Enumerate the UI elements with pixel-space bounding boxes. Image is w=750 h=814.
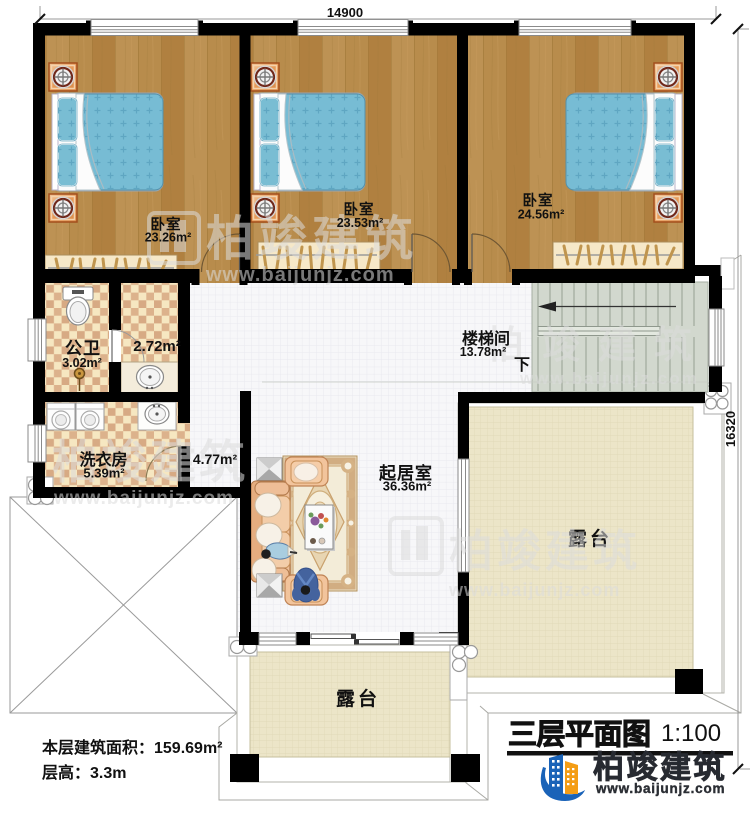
svg-text:4.77m²: 4.77m²: [193, 451, 238, 467]
svg-text:24.56m²: 24.56m²: [518, 208, 565, 222]
svg-text:16320: 16320: [723, 411, 738, 447]
svg-text:3.02m²: 3.02m²: [62, 356, 102, 370]
svg-text:www.baijunjz.com: www.baijunjz.com: [205, 264, 395, 286]
svg-text:36.36m²: 36.36m²: [383, 479, 432, 494]
svg-text:露台: 露台: [336, 687, 380, 710]
svg-text:三层平面图: 三层平面图: [508, 719, 651, 751]
svg-text:柏竣建筑: 柏竣建筑: [593, 750, 727, 785]
svg-text:13.78m²: 13.78m²: [460, 345, 507, 359]
svg-text:下: 下: [514, 357, 530, 374]
svg-text:23.53m²: 23.53m²: [337, 216, 384, 230]
svg-text:柏竣建筑: 柏竣建筑: [206, 213, 418, 266]
svg-text:www.baijunjz.com: www.baijunjz.com: [53, 488, 234, 509]
svg-text:5.39m²: 5.39m²: [83, 466, 125, 481]
svg-text:1:100: 1:100: [661, 720, 721, 747]
svg-text:23.26m²: 23.26m²: [145, 231, 192, 245]
svg-text:14900: 14900: [327, 5, 363, 20]
svg-text:www.baijunjz.com: www.baijunjz.com: [595, 781, 725, 796]
svg-text:柏竣建筑: 柏竣建筑: [449, 527, 641, 576]
svg-text:www.baijunjz.com: www.baijunjz.com: [519, 369, 699, 388]
svg-text:本层建筑面积：159.69m²: 本层建筑面积：159.69m²: [42, 738, 223, 757]
svg-text:2.72m²: 2.72m²: [133, 338, 181, 355]
svg-text:www.baijunjz.com: www.baijunjz.com: [448, 580, 620, 600]
svg-text:层高：3.3m: 层高：3.3m: [42, 763, 126, 782]
